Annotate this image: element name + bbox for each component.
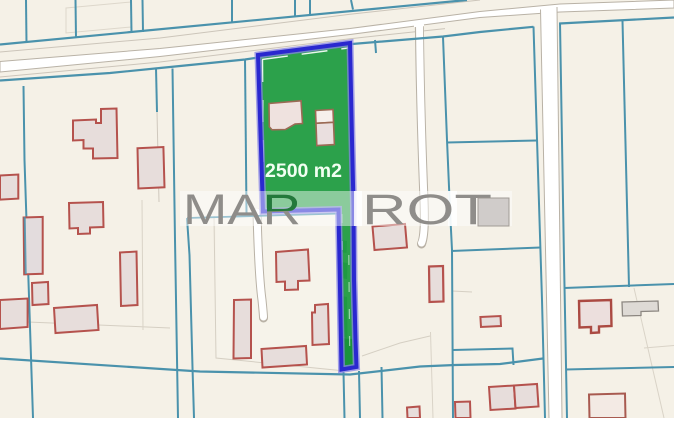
svg-text:ROT: ROT — [362, 186, 492, 234]
svg-text:2500 m2: 2500 m2 — [265, 160, 342, 182]
